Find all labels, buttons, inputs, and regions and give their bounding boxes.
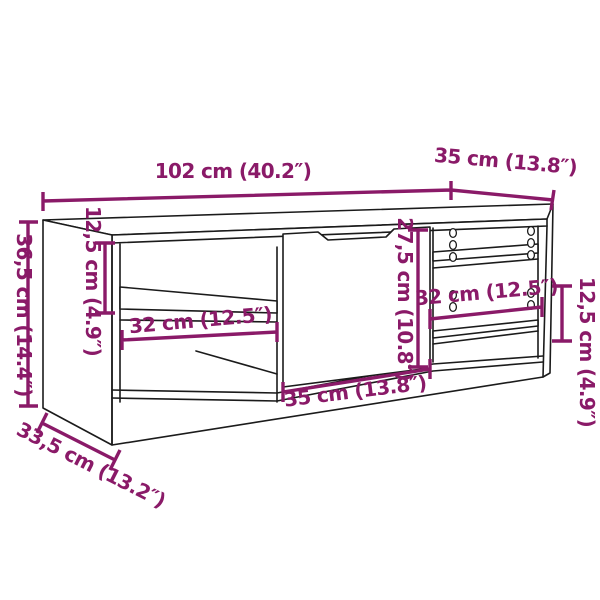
furniture-dimension-diagram: 102 cm (40.2″) 35 cm (13.8″) 36,5 cm (14…	[0, 0, 600, 600]
dim-label-door-height: 27,5 cm (10.8″)	[393, 217, 417, 381]
dim-label-top-width: 102 cm (40.2″)	[155, 159, 312, 183]
dim-label-left-shelf-gap: 12,5 cm (4.9″)	[81, 206, 105, 356]
diagram-canvas: 102 cm (40.2″) 35 cm (13.8″) 36,5 cm (14…	[0, 0, 600, 600]
dim-label-right-shelf-gap: 12,5 cm (4.9″)	[575, 277, 599, 427]
right-shelf-upper-surface	[433, 244, 538, 261]
left-floor-surface-edge	[196, 351, 277, 374]
right-shelf-lower-surface	[433, 320, 538, 338]
dim-label-right-shelf-width: 32 cm (12.5″)	[414, 274, 559, 310]
dim-label-top-depth: 35 cm (13.8″)	[433, 143, 578, 179]
dim-label-height: 36,5 cm (14.4″)	[12, 233, 36, 397]
